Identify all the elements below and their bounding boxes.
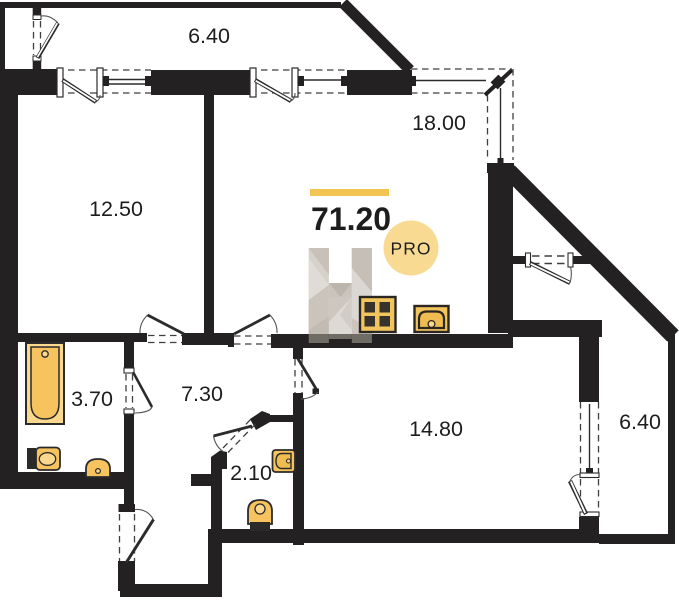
svg-text:18.00: 18.00 (412, 111, 466, 135)
svg-text:6.40: 6.40 (188, 24, 230, 48)
svg-text:3.70: 3.70 (71, 387, 113, 411)
svg-text:2.10: 2.10 (230, 461, 272, 485)
svg-text:PRO: PRO (391, 239, 432, 259)
svg-text:71.20: 71.20 (311, 201, 391, 237)
svg-text:12.50: 12.50 (89, 197, 143, 221)
svg-text:7.30: 7.30 (181, 382, 223, 406)
svg-text:14.80: 14.80 (409, 417, 463, 441)
svg-text:6.40: 6.40 (619, 410, 661, 434)
